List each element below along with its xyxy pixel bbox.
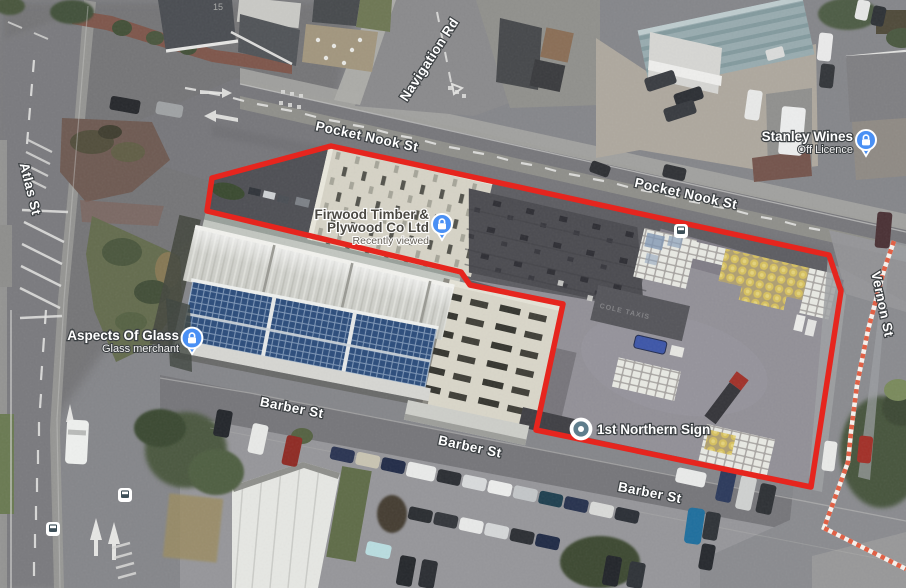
svg-text:Off Licence: Off Licence [798, 144, 853, 156]
svg-text:1st Northern Sign: 1st Northern Sign [597, 422, 710, 437]
svg-text:Plywood Co Ltd: Plywood Co Ltd [327, 220, 429, 235]
svg-text:Aspects Of Glass: Aspects Of Glass [67, 328, 179, 343]
svg-text:Stanley Wines: Stanley Wines [762, 129, 853, 144]
svg-text:Glass merchant: Glass merchant [102, 343, 179, 355]
svg-text:Recently viewed: Recently viewed [353, 235, 430, 247]
svg-text:15: 15 [213, 2, 223, 12]
